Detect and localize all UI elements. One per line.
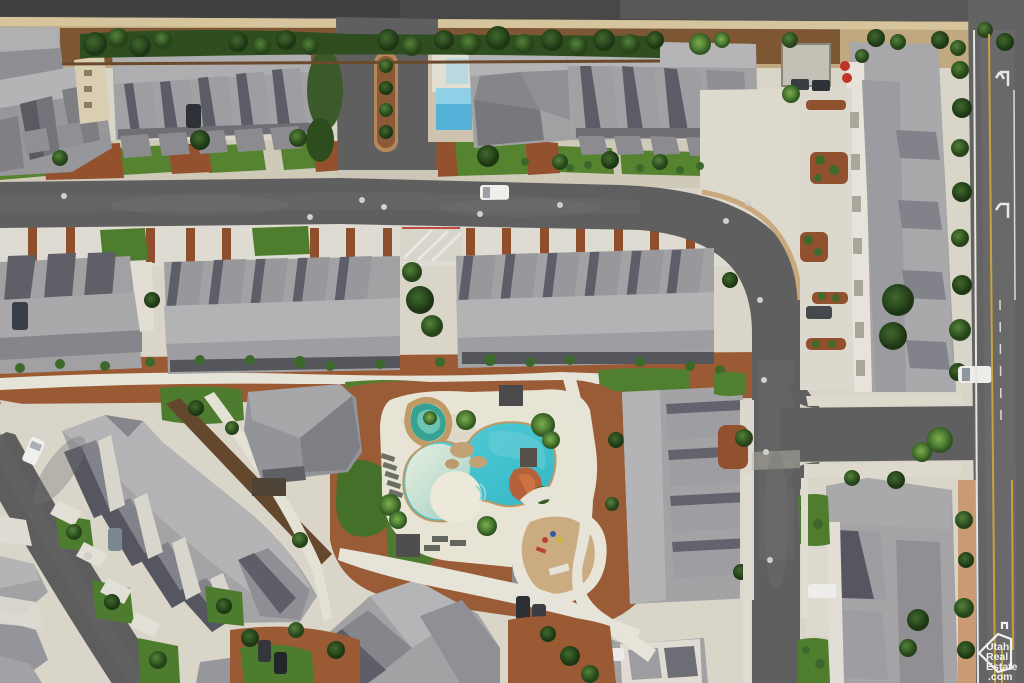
svg-text:.com: .com	[988, 671, 1013, 683]
